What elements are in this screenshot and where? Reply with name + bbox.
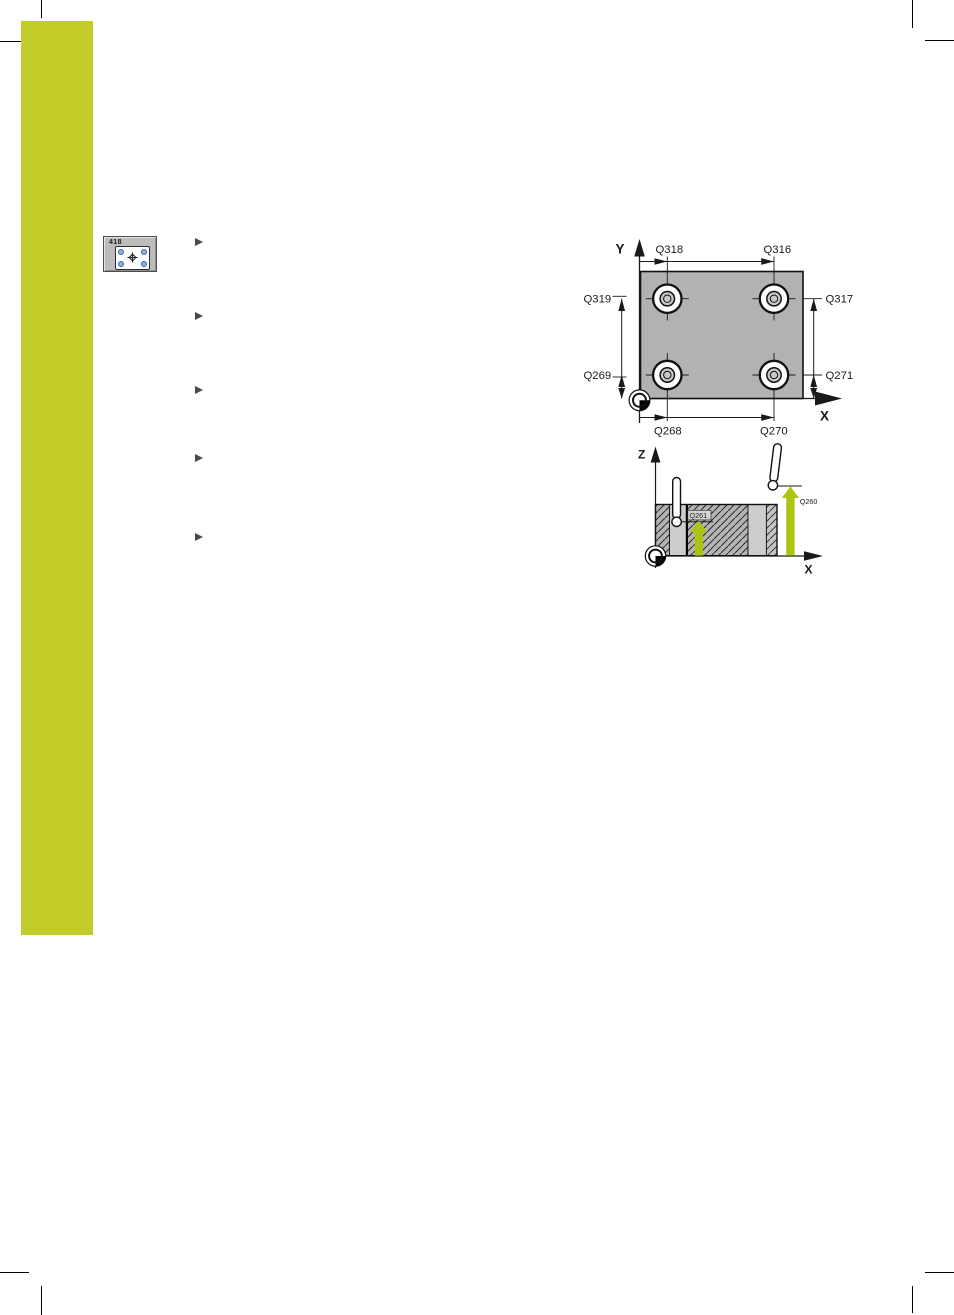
label-q316: Q316	[764, 244, 792, 256]
q260-height-arrow	[782, 486, 799, 555]
x-axis-arrow-icon	[804, 551, 823, 561]
softkey-cycle-418: 418	[103, 236, 157, 272]
label-q260: Q260	[800, 497, 818, 506]
softkey-4-holes-icon	[115, 246, 150, 270]
label-q268: Q268	[654, 426, 682, 438]
dim-arrow-icon	[618, 299, 625, 311]
crop-mark-top-right-v	[912, 0, 913, 28]
y-axis-label: Y	[616, 242, 625, 257]
dim-arrow-icon	[810, 375, 817, 387]
label-q319: Q319	[584, 294, 612, 306]
touch-probe-clearance	[769, 443, 781, 482]
dim-arrow-icon	[761, 414, 774, 421]
crop-mark-top-left-h	[0, 41, 21, 42]
dim-arrow-icon	[810, 299, 817, 311]
y-axis-arrow-icon	[634, 239, 645, 257]
chapter-accent-bar	[21, 21, 93, 935]
hole-top-right	[760, 285, 788, 313]
hole-dot-icon	[118, 249, 124, 255]
dim-arrow-icon	[655, 258, 668, 265]
x-axis-arrow-icon	[815, 392, 842, 406]
hole-dot-icon	[141, 249, 147, 255]
label-q271: Q271	[826, 370, 854, 382]
touch-probe-in-hole	[672, 478, 681, 527]
x-axis-label: X	[805, 563, 813, 577]
bullet-marker-icon	[195, 386, 203, 394]
bullet-marker-icon	[195, 454, 203, 462]
probe-tip	[768, 481, 777, 490]
hole-dot-icon	[118, 261, 124, 267]
dim-arrow-icon	[761, 258, 774, 265]
hole-dot-icon	[141, 261, 147, 267]
softkey-number: 418	[109, 239, 122, 246]
x-axis-label: X	[820, 409, 829, 424]
hole-bottom-right	[760, 361, 788, 389]
manual-page: 418	[0, 0, 954, 1315]
label-q269: Q269	[584, 370, 612, 382]
crop-mark-top-right-h	[925, 40, 954, 41]
hole-top-left	[653, 285, 681, 313]
datum-symbol	[645, 546, 665, 566]
side-view-section-diagram: Q261 Q260 Z X	[600, 438, 845, 580]
datum-crosshair-icon	[127, 252, 138, 263]
label-q270: Q270	[760, 426, 788, 438]
bullet-marker-icon	[195, 238, 203, 246]
dim-arrow-icon	[618, 388, 625, 399]
datum-symbol	[629, 390, 650, 411]
hole-bottom-left	[653, 361, 681, 389]
top-view-4-holes-diagram: Y X Q318 Q316 Q319 Q317 Q269 Q271 Q268 Q…	[570, 230, 870, 445]
dim-arrow-icon	[655, 414, 668, 421]
crop-mark-bottom-right-v	[912, 1286, 913, 1313]
bullet-marker-icon	[195, 312, 203, 320]
label-q317: Q317	[826, 294, 854, 306]
crop-mark-top-left-v	[41, 0, 42, 18]
label-q318: Q318	[656, 244, 684, 256]
z-axis-arrow-icon	[651, 447, 661, 463]
label-q261: Q261	[690, 511, 708, 520]
z-axis-label: Z	[638, 448, 645, 462]
crop-mark-bottom-left-v	[41, 1286, 42, 1315]
bullet-marker-icon	[195, 533, 203, 541]
crop-mark-bottom-left-h	[0, 1272, 29, 1273]
crop-mark-bottom-right-h	[925, 1272, 954, 1273]
